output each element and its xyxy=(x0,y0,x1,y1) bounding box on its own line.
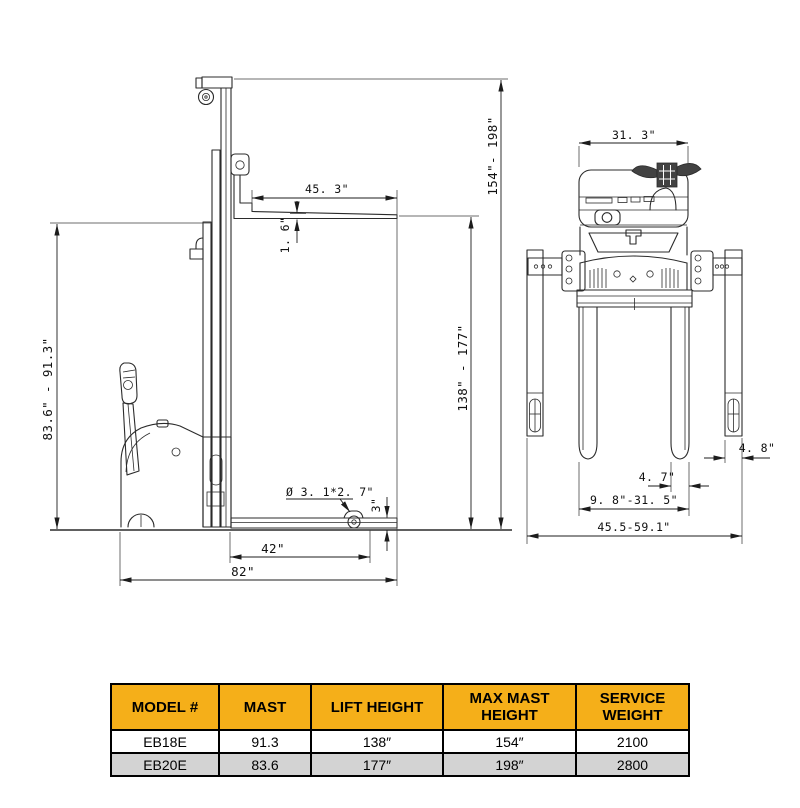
cell-service-weight: 2100 xyxy=(576,730,689,753)
dim-label-caster-size: Ø 3. 1*2. 7" xyxy=(286,485,374,499)
mast-outer-rail xyxy=(203,222,211,527)
cell-mast: 91.3 xyxy=(219,730,311,753)
column-header-max-mast-height: MAX MAST HEIGHT xyxy=(443,684,576,730)
column-header-lift-height: LIFT HEIGHT xyxy=(311,684,443,730)
dim-label-overall-length: 82" xyxy=(231,564,255,579)
support-arm-right xyxy=(713,258,742,275)
straddle-leg-side xyxy=(231,518,397,528)
fork-left-front xyxy=(579,307,597,459)
front-view-drawing xyxy=(527,163,742,459)
column-header-mast: MAST xyxy=(219,684,311,730)
cell-model: EB20E xyxy=(111,753,219,776)
dim-label-fork-length: 45. 3" xyxy=(305,182,349,196)
body-cover xyxy=(121,423,203,527)
spec-table: MODEL # MAST LIFT HEIGHT MAX MAST HEIGHT… xyxy=(110,683,690,777)
table-row-eb18e: EB18E 91.3 138″ 154″ 2100 xyxy=(111,730,689,753)
dim-label-leg-length: 42" xyxy=(261,541,285,556)
mast-cap-tab xyxy=(196,78,202,88)
cell-lift-height: 138″ xyxy=(311,730,443,753)
dim-label-lift-height: 138" - 177" xyxy=(455,324,470,411)
side-view-drawing xyxy=(50,77,512,530)
hydraulic-hose xyxy=(196,238,203,249)
table-row-eb20e: EB20E 83.6 177″ 198″ 2800 xyxy=(111,753,689,776)
tiller-grip-right xyxy=(677,163,701,175)
cell-model: EB18E xyxy=(111,730,219,753)
cell-lift-height: 177″ xyxy=(311,753,443,776)
cell-mast: 83.6 xyxy=(219,753,311,776)
stacker-technical-drawing: 83.6" - 91.3" 45. 3" 1. 6" 154"- 198" 13… xyxy=(0,0,800,660)
column-header-model: MODEL # xyxy=(111,684,219,730)
spec-table-header-row: MODEL # MAST LIFT HEIGHT MAX MAST HEIGHT… xyxy=(111,684,689,730)
tiller-head xyxy=(120,363,137,404)
dim-label-fork-thickness: 1. 6" xyxy=(278,217,292,254)
dim-label-body-width: 31. 3" xyxy=(612,128,656,142)
stacker-spec-sheet: 83.6" - 91.3" 45. 3" 1. 6" 154"- 198" 13… xyxy=(0,0,800,808)
column-header-service-weight: SERVICE WEIGHT xyxy=(576,684,689,730)
fork-mount-left xyxy=(590,268,606,288)
dim-label-fork-width: 4. 7" xyxy=(639,470,676,484)
cell-max-mast-height: 198″ xyxy=(443,753,576,776)
dim-label-mast-height: 83.6" - 91.3" xyxy=(40,337,55,440)
dim-label-max-mast-height: 154"- 198" xyxy=(485,116,500,195)
front-view-dimensions: 31. 3" 4. 8" 4. 7" 9. 8"-31. 5" 45.5-59.… xyxy=(527,128,775,544)
key-switch xyxy=(602,213,612,223)
fork-right-front xyxy=(671,307,689,459)
fork-carriage xyxy=(231,154,249,175)
leg-bracket-left xyxy=(562,251,585,291)
carriage-hump xyxy=(580,256,687,263)
dim-label-fork-span: 9. 8"-31. 5" xyxy=(590,493,678,507)
mast-pulley xyxy=(199,90,214,105)
fork-mount-right xyxy=(662,268,678,288)
leg-bracket-right xyxy=(691,251,713,291)
tiller-grip-left xyxy=(632,166,657,178)
mast-mid-rail xyxy=(212,150,220,527)
tiller-head-front xyxy=(657,163,677,187)
mast-cap xyxy=(202,77,232,88)
side-view-dimensions: 83.6" - 91.3" 45. 3" 1. 6" 154"- 198" 13… xyxy=(40,79,508,586)
hydraulic-fitting xyxy=(190,249,203,259)
handle-recess xyxy=(589,233,678,252)
chassis-box xyxy=(203,437,231,527)
cell-service-weight: 2800 xyxy=(576,753,689,776)
roller-bracket xyxy=(344,511,363,518)
dim-label-lowered-fork-height: 3" xyxy=(369,498,383,513)
latch-bracket xyxy=(626,230,641,244)
display-window xyxy=(586,198,612,203)
dim-label-leg-span: 45.5-59.1" xyxy=(597,520,670,534)
cell-max-mast-height: 154″ xyxy=(443,730,576,753)
dim-label-leg-width: 4. 8" xyxy=(739,441,776,455)
